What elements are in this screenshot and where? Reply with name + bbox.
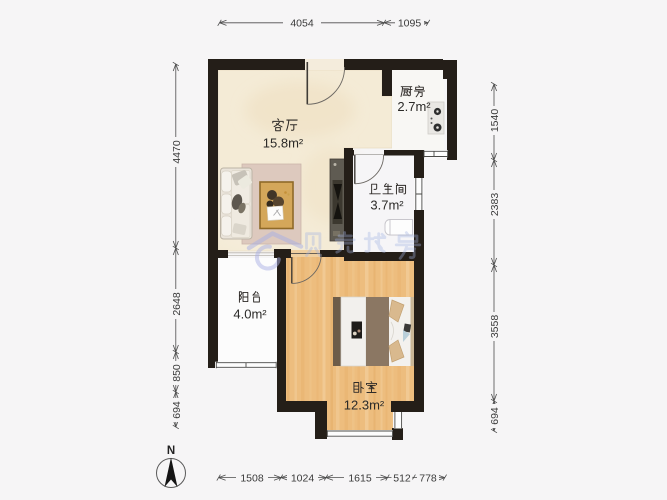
svg-text:1095: 1095 <box>398 18 422 30</box>
svg-text:4.0m²: 4.0m² <box>233 307 267 322</box>
svg-text:1508: 1508 <box>240 472 264 484</box>
svg-text:850: 850 <box>171 364 183 382</box>
svg-text:15.8m²: 15.8m² <box>263 136 304 151</box>
svg-text:2383: 2383 <box>489 193 501 217</box>
svg-text:4054: 4054 <box>290 18 314 30</box>
svg-text:1615: 1615 <box>348 472 372 484</box>
svg-text:3558: 3558 <box>489 315 501 339</box>
svg-text:3.7m²: 3.7m² <box>370 198 404 213</box>
svg-text:694: 694 <box>171 401 183 419</box>
svg-text:12.3m²: 12.3m² <box>344 398 385 413</box>
svg-text:1024: 1024 <box>291 472 315 484</box>
svg-text:778: 778 <box>419 472 437 484</box>
svg-text:2648: 2648 <box>171 292 183 316</box>
svg-text:1540: 1540 <box>489 109 501 133</box>
svg-text:2.7m²: 2.7m² <box>397 99 431 114</box>
svg-text:694: 694 <box>489 407 501 425</box>
svg-text:N: N <box>167 445 175 457</box>
svg-text:512: 512 <box>393 472 411 484</box>
svg-text:4470: 4470 <box>171 140 183 164</box>
